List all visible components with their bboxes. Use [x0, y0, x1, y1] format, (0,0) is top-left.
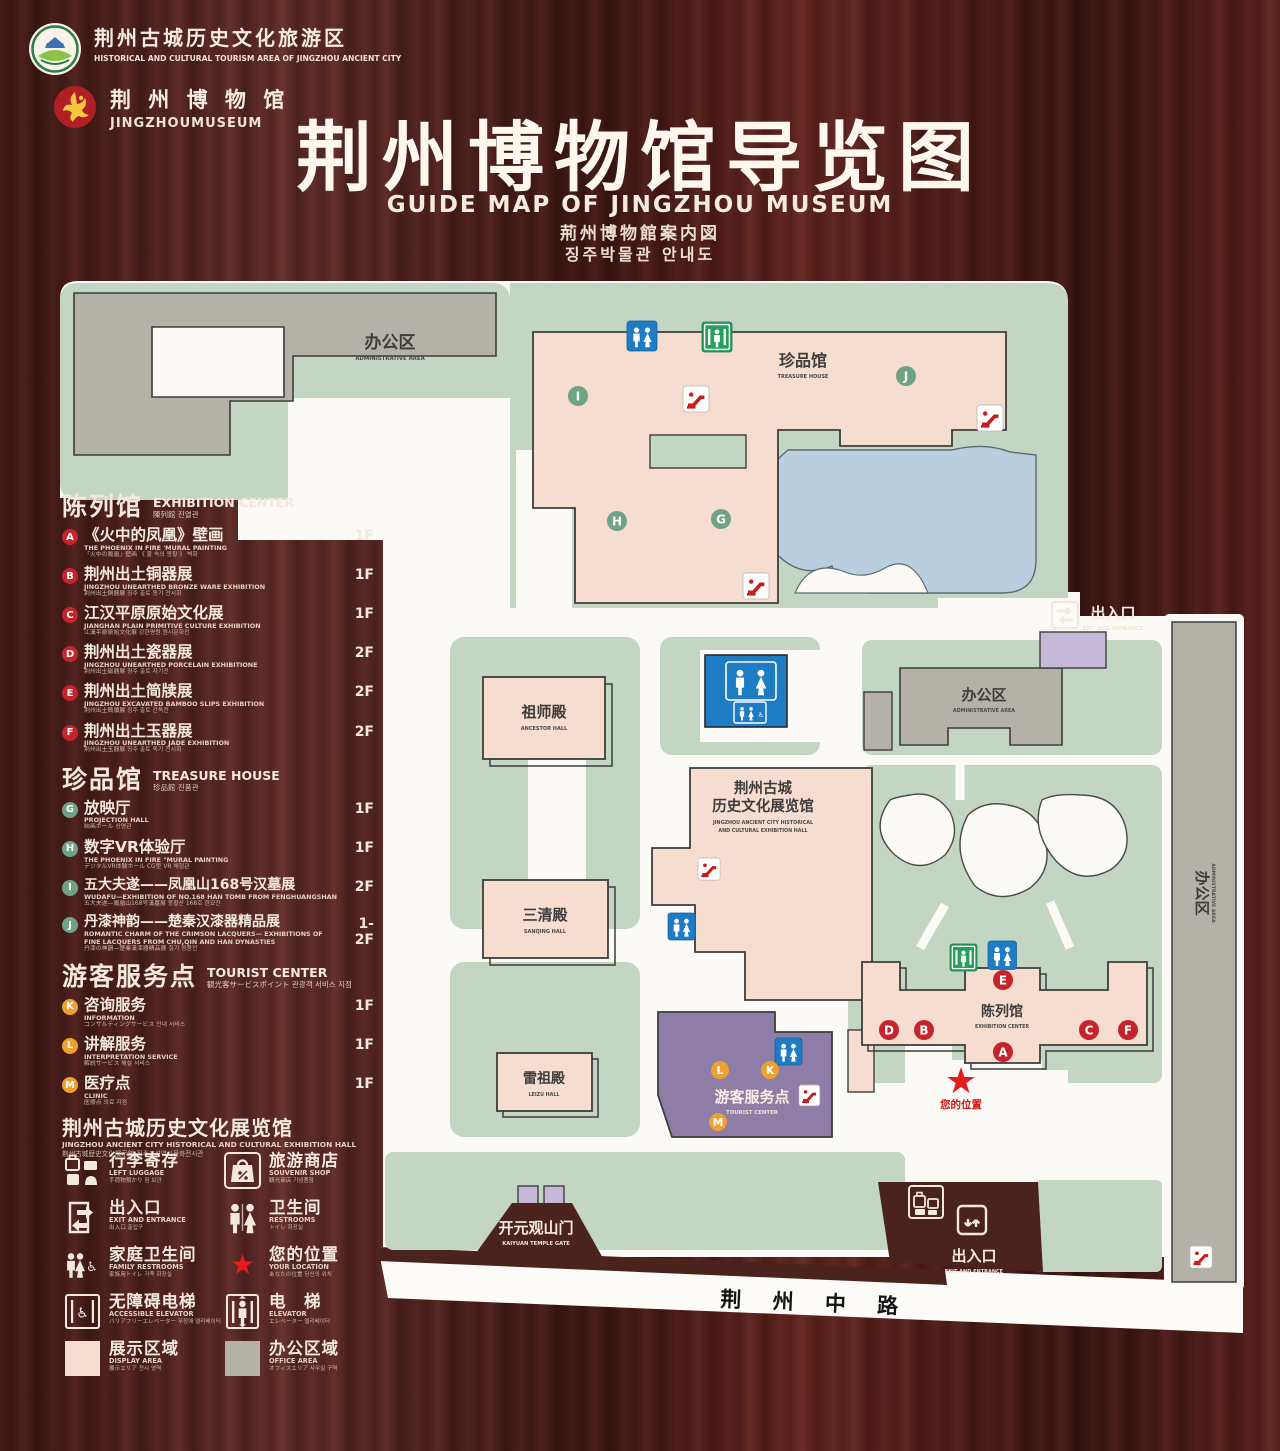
section-treasure-house: 珍品馆 TREASURE HOUSE珍品館 진품관: [62, 767, 374, 792]
section-tourist-center: 游客服务点 TOURIST CENTER観光客サービスポイント 관광객 서비스 …: [62, 964, 374, 989]
exit-entrance-icon: [64, 1199, 101, 1236]
svg-text:D: D: [884, 1024, 894, 1038]
legend-item-k: K咨询服务INFORMATIONコンサルティングサービス 안내 서비스1F: [62, 997, 374, 1029]
svg-text:ANCESTOR HALL: ANCESTOR HALL: [521, 726, 568, 732]
restroom-icon: [988, 941, 1017, 970]
building-leizu-hall: 雷祖殿 LEIZU HALL: [497, 1053, 598, 1117]
sidebar-legend: 陈列馆 EXHIBITION CENTER陳列館 진열관 A《火中的凤凰》壁画T…: [62, 494, 374, 1158]
logo-tourism: 荆州古城历史文化旅游区 HISTORICAL AND CULTURAL TOUR…: [28, 22, 401, 76]
escalator-icon: [683, 386, 709, 412]
legend-display-area: 展示区域DISPLAY AREA展示エリア 전시 영역: [64, 1340, 224, 1377]
office-area-swatch: [224, 1340, 261, 1377]
svg-text:雷祖殿: 雷祖殿: [523, 1070, 566, 1087]
svg-text:ADMINISTRATIVE AREA: ADMINISTRATIVE AREA: [953, 708, 1015, 714]
svg-text:办公区: 办公区: [365, 332, 416, 353]
building-admin-strip: 办公区 ADMINISTRATIVE AREA: [1172, 622, 1236, 1282]
svg-text:办公区: 办公区: [1193, 870, 1211, 915]
escalator-icon: [698, 858, 720, 880]
svg-text:珍品馆: 珍品馆: [779, 351, 827, 370]
svg-text:★: ★: [945, 1061, 977, 1102]
svg-text:★: ★: [230, 1248, 255, 1281]
svg-text:♿: ♿: [76, 1306, 89, 1322]
svg-text:出入口: 出入口: [1090, 604, 1135, 622]
legend-item-g: G放映厅PROJECTION HALL映画ホール 상영관1F: [62, 800, 374, 832]
left-luggage-icon: [64, 1152, 101, 1189]
page-title-ko: 징주박물관 안내도: [0, 241, 1280, 265]
svg-text:陈列馆: 陈列馆: [981, 1003, 1023, 1020]
svg-text:EXIT AND ENTRANCE: EXIT AND ENTRANCE: [1083, 626, 1144, 632]
svg-text:I: I: [576, 390, 580, 404]
escalator-icon: [743, 573, 769, 599]
svg-text:JINGZHOU ANCIENT CITY HISTORIC: JINGZHOU ANCIENT CITY HISTORICAL: [712, 820, 813, 826]
family-restrooms-icon: ♿: [64, 1246, 101, 1283]
svg-text:SANQING HALL: SANQING HALL: [524, 929, 567, 935]
icon-legend: 行李寄存LEFT LUGGAGE手荷物預かり 짐 보관 旅游商店SOUVENIR…: [64, 1152, 394, 1377]
svg-text:J: J: [903, 370, 908, 384]
svg-text:ADMINISTRATIVE AREA: ADMINISTRATIVE AREA: [355, 356, 425, 362]
building-sanqing-hall: 三清殿 SANQING HALL: [483, 880, 615, 965]
restrooms-icon: [224, 1199, 261, 1236]
svg-text:M: M: [713, 1116, 724, 1129]
svg-text:G: G: [716, 513, 726, 527]
legend-item-l: L讲解服务INTERPRETATION SERVICE解説サービス 해설 서비스…: [62, 1036, 374, 1068]
svg-text:F: F: [1124, 1024, 1132, 1038]
elevator-icon: [224, 1293, 261, 1330]
legend-item-e: E荆州出土简牍展JINGZHOU EXCAVATED BAMBOO SLIPS …: [62, 683, 374, 715]
page-title: 荆州博物馆导览图: [0, 96, 1280, 206]
svg-text:KAIYUAN TEMPLE GATE: KAIYUAN TEMPLE GATE: [502, 1241, 570, 1247]
accessible-elevator-icon: ♿: [64, 1293, 101, 1330]
svg-text:E: E: [999, 974, 1007, 988]
svg-text:LEIZU HALL: LEIZU HALL: [528, 1092, 559, 1098]
svg-text:出入口: 出入口: [951, 1247, 996, 1265]
svg-text:历史文化展览馆: 历史文化展览馆: [712, 797, 814, 815]
svg-text:您的位置: 您的位置: [940, 1098, 982, 1111]
svg-text:L: L: [716, 1064, 723, 1077]
svg-text:TOURIST CENTER: TOURIST CENTER: [726, 1110, 779, 1116]
legend-item-a: A《火中的凤凰》壁画THE PHOENIX IN FIRE 'MURAL PAI…: [62, 527, 374, 559]
building-ancestor-hall: 祖师殿 ANCESTOR HALL: [483, 677, 612, 766]
svg-text:TREASURE HOUSE: TREASURE HOUSE: [778, 374, 829, 380]
legend-accessible-elevator: ♿ 无障碍电梯ACCESSIBLE ELEVATORバリアフリーエレベーター 무…: [64, 1293, 224, 1330]
svg-text:荆州古城: 荆州古城: [734, 779, 792, 797]
legend-item-f: F荆州出土玉器展JINGZHOU UNEARTHED JADE EXHIBITI…: [62, 723, 374, 755]
restroom-icon: [668, 913, 695, 940]
your-location-marker: ★ 您的位置: [940, 1061, 982, 1111]
souvenir-shop-icon: [224, 1152, 261, 1189]
elevator-icon: [950, 944, 977, 971]
elevator-icon: [702, 322, 732, 352]
svg-text:EXIT AND ENTRANCE: EXIT AND ENTRANCE: [945, 1269, 1004, 1275]
legend-exit-entrance: 出入口EXIT AND ENTRANCE出入口 출입구: [64, 1199, 224, 1236]
legend-item-i: I五大夫遂——凤凰山168号汉墓展WUDAFU—EXHIBITION OF NO…: [62, 878, 374, 908]
legend-family-restrooms: ♿ 家庭卫生间FAMILY RESTROOMS家族用トイレ 가족 화장실: [64, 1246, 224, 1283]
svg-text:EXHIBITION CENTER: EXHIBITION CENTER: [975, 1024, 1029, 1030]
legend-item-d: D荆州出土瓷器展JINGZHOU UNEARTHED PORCELAIN EXH…: [62, 644, 374, 676]
legend-item-b: B荆州出土铜器展JINGZHOU UNEARTHED BRONZE WARE E…: [62, 566, 374, 598]
legend-item-c: C江汉平原原始文化展JIANGHAN PLAIN PRIMITIVE CULTU…: [62, 605, 374, 637]
restroom-icon: [775, 1038, 802, 1065]
escalator-icon: [799, 1085, 820, 1106]
svg-text:AND CULTURAL EXHIBITION HALL: AND CULTURAL EXHIBITION HALL: [718, 828, 807, 834]
svg-text:A: A: [998, 1046, 1008, 1060]
escalator-icon: [977, 405, 1003, 431]
display-area-swatch: [64, 1340, 101, 1377]
legend-restrooms: 卫生间RESTROOMSトイレ 화장실: [224, 1199, 394, 1236]
svg-text:K: K: [766, 1064, 775, 1077]
svg-text:三清殿: 三清殿: [522, 906, 568, 924]
svg-text:办公区: 办公区: [961, 686, 1006, 704]
page-title-en: GUIDE MAP OF JINGZHOU MUSEUM: [0, 192, 1280, 218]
svg-text:H: H: [612, 515, 622, 529]
svg-text:祖师殿: 祖师殿: [520, 703, 567, 721]
legend-item-j: J丹漆神韵——楚秦汉漆器精品展ROMANTIC CHARM OF THE CRI…: [62, 915, 374, 953]
svg-text:ADMINISTRATIVE AREA: ADMINISTRATIVE AREA: [1210, 863, 1216, 923]
svg-text:B: B: [919, 1024, 928, 1038]
legend-item-m: M医疗点CLINIC医療点 의료 지점1F: [62, 1075, 374, 1107]
legend-elevator: 电 梯ELEVATORエレベーター 엘리베이터: [224, 1293, 394, 1330]
treasure-inner-court: [650, 435, 746, 468]
legend-left-luggage: 行李寄存LEFT LUGGAGE手荷物預かり 짐 보관: [64, 1152, 224, 1189]
svg-text:游客服务点: 游客服务点: [714, 1088, 789, 1106]
svg-text:♿: ♿: [758, 711, 764, 719]
section-exhibition-center: 陈列馆 EXHIBITION CENTER陳列館 진열관: [62, 494, 374, 519]
legend-your-location: ★ 您的位置YOUR LOCATIONあなたの位置 당신의 위치: [224, 1246, 394, 1283]
svg-text:开元观山门: 开元观山门: [498, 1219, 573, 1237]
legend-souvenir-shop: 旅游商店SOUVENIR SHOP観光商店 기념품점: [224, 1152, 394, 1189]
svg-text:♿: ♿: [86, 1260, 98, 1275]
restroom-icon: [627, 321, 657, 351]
your-location-icon: ★: [224, 1246, 261, 1283]
tourism-logo-icon: [28, 22, 82, 76]
escalator-icon: [1190, 1246, 1212, 1268]
building-central-restroom: ♿: [705, 655, 787, 727]
legend-office-area: 办公区域OFFICE AREAオフィスエリア 사무실 구역: [224, 1340, 394, 1377]
svg-text:C: C: [1085, 1024, 1094, 1038]
legend-item-h: H数字VR体验厅THE PHOENIX IN FIRE "MURAL PAINT…: [62, 839, 374, 871]
